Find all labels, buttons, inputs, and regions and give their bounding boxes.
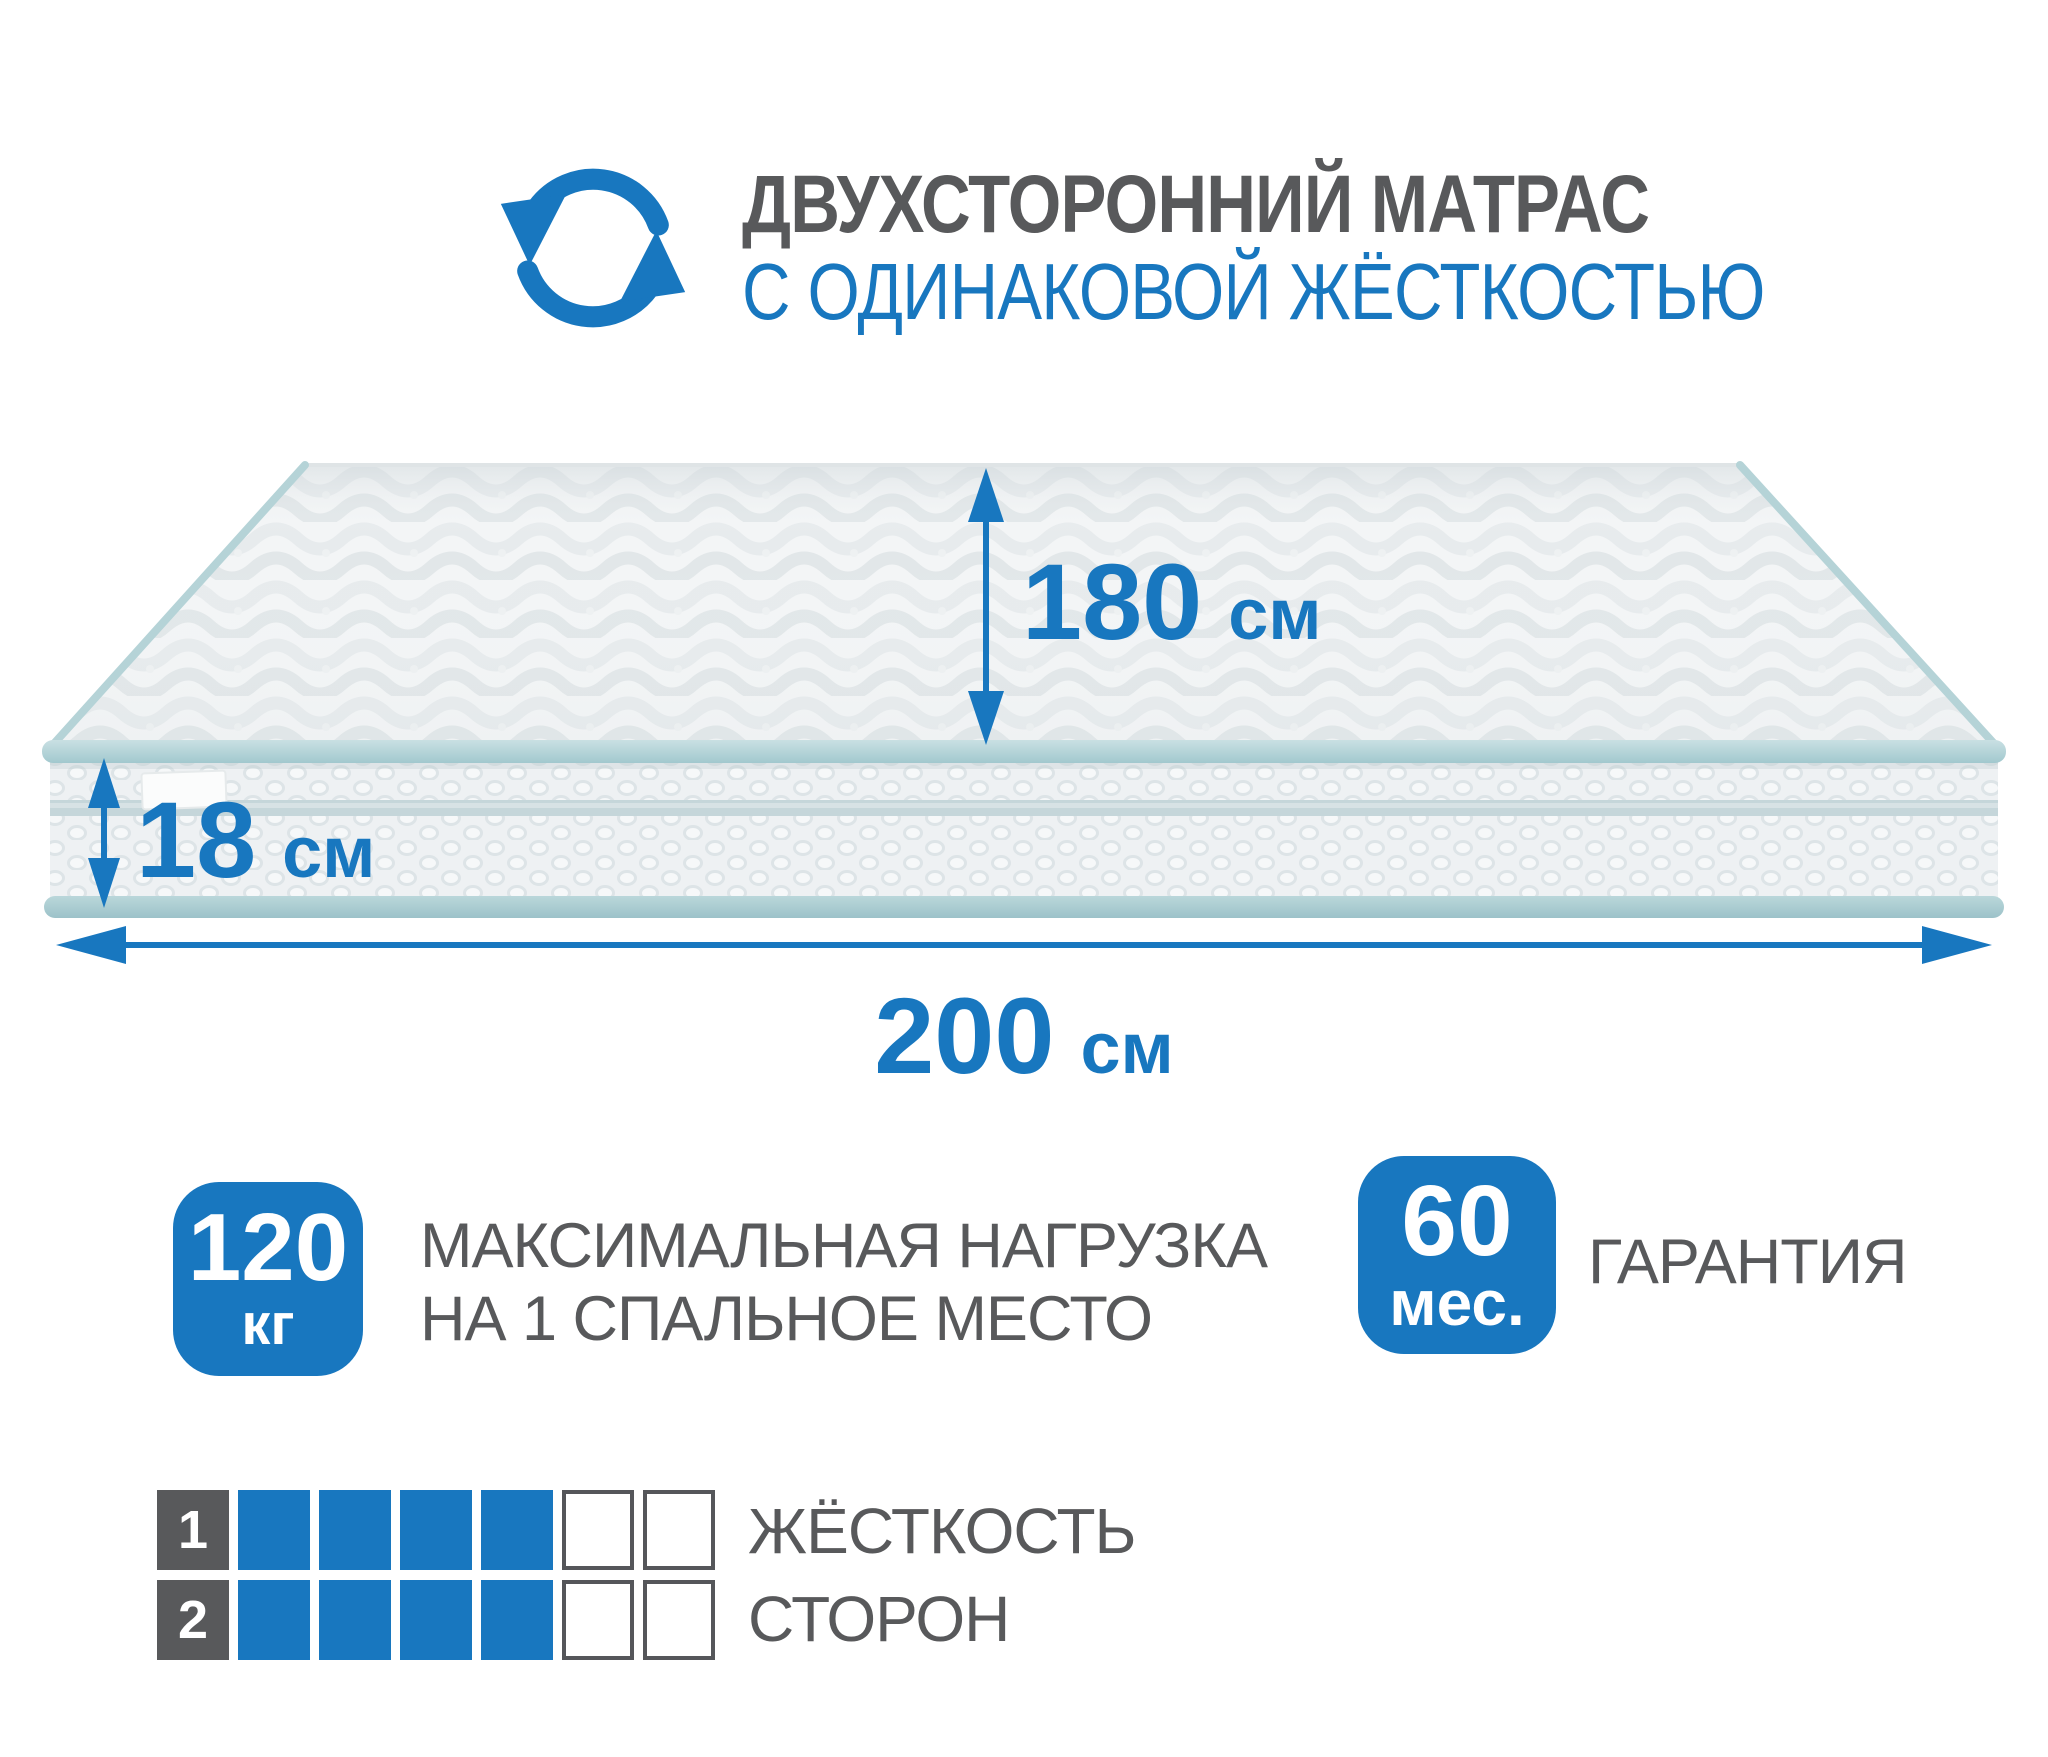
max-load-badge: 120 кг bbox=[173, 1182, 363, 1376]
firmness-row-1: 1 bbox=[157, 1490, 715, 1570]
firmness-cell-empty bbox=[643, 1580, 715, 1660]
length-dimension-arrow bbox=[56, 926, 1992, 964]
mattress-infographic: ДВУХСТОРОННИЙ МАТРАС С ОДИНАКОВОЙ ЖЁСТКО… bbox=[0, 0, 2048, 1757]
firmness-cell-filled bbox=[238, 1580, 310, 1660]
max-load-value: 120 bbox=[188, 1204, 348, 1292]
length-unit: см bbox=[1080, 1013, 1173, 1085]
height-unit: см bbox=[282, 817, 375, 889]
firmness-row-number: 1 bbox=[157, 1490, 229, 1570]
width-dimension-label: 180 см bbox=[1022, 548, 1322, 656]
firmness-cell-empty bbox=[562, 1580, 634, 1660]
warranty-value: 60 bbox=[1401, 1175, 1512, 1267]
warranty-label: ГАРАНТИЯ bbox=[1588, 1226, 1907, 1299]
firmness-cell-filled bbox=[481, 1490, 553, 1570]
firmness-row-cells bbox=[238, 1490, 715, 1570]
length-dimension-label: 200 см bbox=[0, 982, 2048, 1090]
firmness-label-line1: ЖЁСТКОСТЬ bbox=[748, 1494, 1136, 1568]
firmness-cell-filled bbox=[238, 1490, 310, 1570]
firmness-row-2: 2 bbox=[157, 1580, 715, 1660]
warranty-badge: 60 мес. bbox=[1358, 1156, 1556, 1354]
height-dimension-label: 18 см bbox=[136, 786, 375, 894]
front-bottom-piping bbox=[44, 896, 2004, 918]
side-top-shadow bbox=[50, 762, 1998, 769]
firmness-cell-filled bbox=[400, 1490, 472, 1570]
firmness-label-line2: СТОРОН bbox=[748, 1582, 1009, 1656]
firmness-cell-filled bbox=[400, 1580, 472, 1660]
max-load-label-line2: НА 1 СПАЛЬНОЕ МЕСТО bbox=[420, 1283, 1267, 1356]
width-value: 180 bbox=[1022, 548, 1202, 656]
firmness-cell-filled bbox=[481, 1580, 553, 1660]
front-top-piping bbox=[42, 740, 2006, 763]
firmness-cell-filled bbox=[319, 1580, 391, 1660]
max-load-unit: кг bbox=[241, 1296, 294, 1354]
firmness-row-cells bbox=[238, 1580, 715, 1660]
max-load-label: МАКСИМАЛЬНАЯ НАГРУЗКА НА 1 СПАЛЬНОЕ МЕСТ… bbox=[420, 1210, 1267, 1356]
warranty-unit: мес. bbox=[1389, 1271, 1524, 1335]
length-value: 200 bbox=[874, 982, 1054, 1090]
firmness-cell-empty bbox=[562, 1490, 634, 1570]
firmness-cell-filled bbox=[319, 1490, 391, 1570]
firmness-cell-empty bbox=[643, 1490, 715, 1570]
width-unit: см bbox=[1228, 579, 1321, 651]
firmness-scale: 1 2 bbox=[157, 1490, 715, 1660]
max-load-label-line1: МАКСИМАЛЬНАЯ НАГРУЗКА bbox=[420, 1210, 1267, 1283]
height-value: 18 bbox=[136, 786, 256, 894]
firmness-row-number: 2 bbox=[157, 1580, 229, 1660]
